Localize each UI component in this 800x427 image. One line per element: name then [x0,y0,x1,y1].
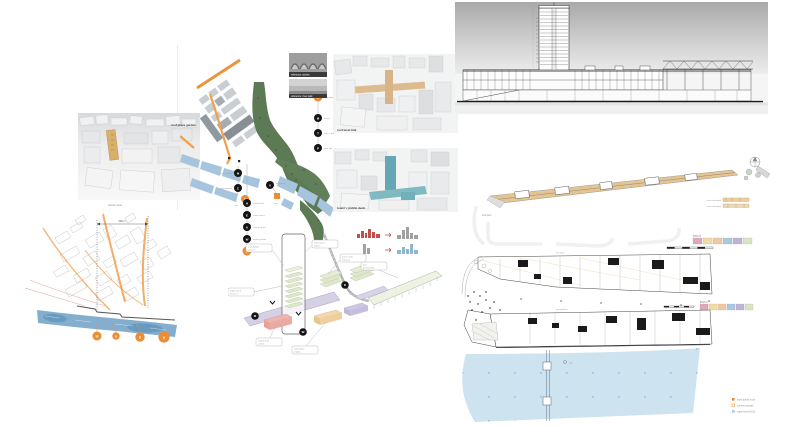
workshops-block [314,310,342,325]
sketch-city-blocks [53,213,171,301]
harbour-water: pier [462,348,700,422]
massing-roof-view: roof level link [333,54,458,133]
presentation-board: roof plaza garden aerial view [0,0,800,427]
svg-text:viewpoint: viewpoint [276,182,286,185]
reference-photos: reference: arches reference: river park [289,53,327,100]
junction-node [228,157,230,159]
svg-text:public deck: public deck [230,290,242,292]
svg-text:first floor: first floor [556,251,565,254]
grey-skyline-tower [397,227,418,239]
building-section [455,2,770,114]
scale-bar [664,306,694,307]
svg-text:market hall: market hall [253,202,264,205]
scale-bar [667,247,713,249]
svg-text:city terminal: city terminal [220,187,232,190]
svg-text:metro station: metro station [219,172,232,175]
transformation-diagrams [355,226,445,258]
svg-text:main public route: main public route [737,399,756,402]
svg-text:offices: offices [314,245,321,247]
transform-row-2 [363,244,418,254]
compass-rose [750,157,760,167]
photo-river-park: reference: river park [289,79,327,98]
svg-text:E: E [246,213,248,217]
svg-text:event space: event space [253,214,266,217]
site-square-marker [274,193,280,199]
arrow-icon [385,233,391,237]
plan-first-floor: first floor [462,251,712,306]
arrow-icon [385,248,391,252]
svg-text:park link: park link [324,147,333,150]
ghost-outlines [474,206,679,246]
svg-text:pier: pier [363,263,367,266]
view-caption: aerial view [80,203,150,207]
svg-text:roof garden: roof garden [248,245,260,248]
red-skyline [357,229,380,238]
view-label: tower + public deck [337,206,365,210]
svg-text:V: V [269,183,271,187]
floor-plans: first floor leve [460,250,800,427]
hatch-patch [472,322,498,340]
svg-text:ground floor: ground floor [556,308,568,311]
svg-text:H: H [246,201,248,205]
svg-text:M: M [96,335,99,339]
svg-text:workshops: workshops [294,347,305,350]
park-corridor [252,82,330,245]
svg-text:reference: river park: reference: river park [291,95,313,98]
svg-text:V: V [163,335,166,340]
svg-text:W: W [302,330,305,334]
grey-tower [363,244,370,254]
svg-text:level +2: level +2 [693,236,701,238]
blue-skyline [397,244,418,254]
sky-background [455,2,768,74]
plan-ground-floor: ground floor [464,291,712,347]
program-key-strip: level +2 [693,236,752,245]
svg-text:P: P [317,146,319,150]
program-key-strip: level +1 [700,302,753,310]
svg-text:south elevation: south elevation [706,205,721,208]
svg-text:level +4: level +4 [230,293,238,295]
sketch-orange-routes [43,214,147,310]
svg-text:covered arcade: covered arcade [737,405,754,408]
sketch-water [37,310,177,337]
svg-text:promenade: promenade [363,266,375,269]
svg-text:studios: studios [294,350,302,353]
svg-text:events: events [258,342,265,345]
transform-row-1 [357,227,418,239]
svg-text:reference: arches: reference: arches [291,74,310,77]
svg-text:T: T [317,131,319,135]
svg-text:green roofs: green roofs [342,255,354,258]
svg-text:level +1: level +1 [700,302,708,304]
svg-text:north elevation: north elevation [707,199,722,202]
plan-legend: main public route covered arcade water l… [732,398,756,414]
roof-plan-caption: roof plan [482,214,492,217]
massing-tower-view: tower + public deck [333,148,458,212]
basement-section [463,90,751,101]
svg-text:water level ±0.00: water level ±0.00 [737,411,756,414]
svg-text:pier: pier [569,361,573,364]
svg-text:site: site [274,202,278,205]
svg-text:hotel tower: hotel tower [314,241,325,244]
svg-text:terrace: terrace [248,248,256,251]
roof-plan: north elevation south elevation roof pla… [470,148,800,252]
pontoon-dots [520,298,710,306]
elevation-strips: north elevation south elevation [706,198,749,208]
dimension-label: 300 m [118,219,125,223]
studio-block [344,303,368,316]
roof-bar [487,170,738,208]
svg-text:metro: metro [324,117,330,120]
svg-text:site: site [235,204,239,207]
svg-text:terraces: terraces [342,258,351,261]
svg-text:market hall: market hall [258,339,269,342]
concept-sketch: 300 m M K S V [25,210,190,350]
photo-arches: reference: arches [289,53,327,77]
view-label: roof level link [337,128,357,132]
